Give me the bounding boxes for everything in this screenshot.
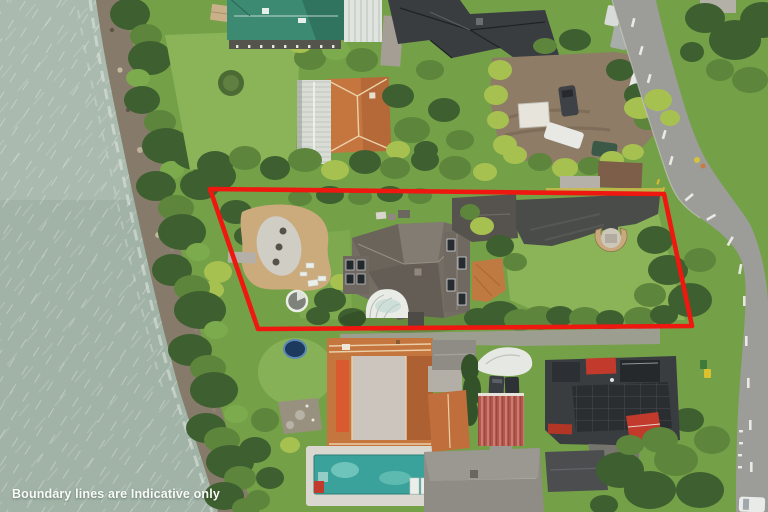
orange-awning (336, 360, 349, 432)
aerial-scene (0, 0, 768, 512)
terracotta-roof-house (327, 77, 392, 153)
red-roof-accent-north (586, 357, 617, 374)
white-cabin (518, 102, 550, 128)
green-metal-roof-house (227, 0, 382, 49)
red-pool-mat (314, 481, 324, 493)
boundary-disclaimer-text: Boundary lines are Indicative only (12, 487, 220, 501)
path-strip (560, 176, 600, 190)
conservatory-wing (344, 0, 382, 42)
white-parked-car-bottom (739, 497, 766, 512)
brick-wall (597, 161, 642, 189)
pool-area (306, 446, 438, 506)
flat-roof-deck (352, 356, 406, 440)
terracotta-villa (327, 338, 433, 452)
spa-pool (287, 291, 307, 311)
trampoline (284, 340, 306, 358)
aerial-photo: Boundary lines are Indicative only (0, 0, 768, 512)
